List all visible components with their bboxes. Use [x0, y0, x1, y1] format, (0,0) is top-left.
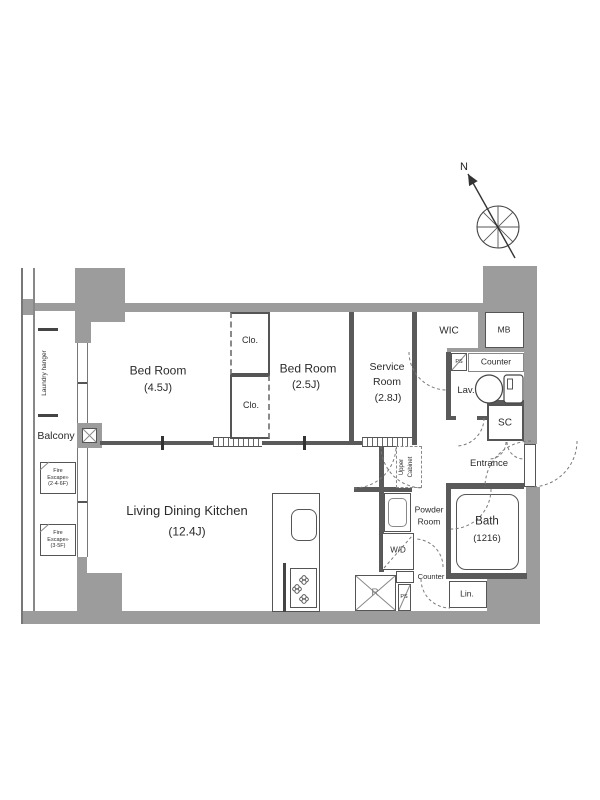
- bedroom-west-size: (4.5J): [144, 382, 172, 394]
- laundry-hanger-label: Laundry hanger: [41, 333, 51, 413]
- kitchen-stub-wall: [283, 563, 286, 612]
- ldk-size: (12.4J): [168, 525, 205, 538]
- linen-label: Lin.: [460, 589, 474, 598]
- fire-escape-text: Escape»: [47, 537, 68, 544]
- laundry-hanger-bar: [38, 328, 58, 331]
- fire-escape-text: Fire: [53, 468, 62, 475]
- wall-bedroom-south-b: [262, 441, 362, 445]
- window-tick: [78, 501, 87, 503]
- closet-upper-label: Clo.: [242, 336, 258, 346]
- pillar-top-right: [483, 266, 537, 310]
- wall-bath-bottom: [446, 573, 527, 579]
- meter-box-label: MB: [498, 325, 511, 334]
- ldk-label: Living Dining Kitchen: [126, 504, 247, 518]
- wall-lav-bottom-a: [446, 416, 456, 420]
- washbasin-bowl: [388, 498, 407, 527]
- pillar-top-left: [75, 268, 125, 322]
- wall-bath-west: [446, 489, 451, 577]
- service-room-label-2: Room: [373, 377, 401, 389]
- entrance-door-leaf: [524, 444, 536, 487]
- powder-room-label-1: Powder: [415, 505, 444, 514]
- svg-text:N: N: [460, 161, 468, 173]
- wall-service-east: [412, 312, 417, 445]
- service-room-size: (2.8J): [375, 393, 402, 405]
- wall-right-upper: [524, 308, 537, 444]
- wall-bedroom2-east: [349, 312, 354, 445]
- pipe-space-top-label: PS: [455, 359, 462, 365]
- wall-top: [75, 303, 537, 312]
- balcony-label: Balcony: [37, 431, 74, 443]
- fire-escape-hatch-upper: Fire Escape» (2·4·6F): [40, 462, 76, 494]
- toilet-icon: [476, 375, 524, 403]
- kitchen-sink: [291, 509, 317, 541]
- closet-lower-label: Clo.: [243, 401, 259, 411]
- fire-escape-text: (3·5F): [51, 543, 66, 550]
- pipe-space-bottom-label: PS: [400, 594, 407, 600]
- lav-label: Lav.: [457, 386, 474, 396]
- balcony-top-bar: [34, 303, 77, 311]
- service-room-label-1: Service: [369, 362, 404, 374]
- bath-size: (1216): [473, 534, 500, 544]
- refrigerator-label: R: [371, 588, 378, 599]
- fire-escape-hatch-lower: Fire Escape» (3·5F): [40, 524, 76, 556]
- door-frame-tick: [303, 436, 306, 450]
- window-tick: [78, 382, 87, 384]
- site-boundary-line: [21, 268, 23, 624]
- fire-escape-text: Fire: [53, 530, 62, 537]
- fire-escape-text: Escape»: [47, 475, 68, 482]
- compass-icon: N: [460, 161, 519, 258]
- door-frame-tick: [161, 436, 164, 450]
- counter-bottom-label: Counter: [418, 573, 445, 581]
- stove-box: [290, 568, 317, 608]
- lav-counter-label: Counter: [481, 357, 511, 366]
- wic-label: WIC: [439, 326, 458, 337]
- laundry-hanger-bar: [38, 414, 58, 417]
- washer-dryer-label: W/D: [390, 547, 406, 556]
- upper-cabinet-label: Upper Cabinet: [398, 440, 420, 494]
- counter-box-bottom: [396, 571, 414, 583]
- powder-room-label-2: Room: [418, 517, 441, 526]
- wall-west-step-b: [87, 573, 122, 611]
- bath-label: Bath: [475, 516, 499, 529]
- wall-bath-top: [446, 483, 524, 489]
- wall-lav-bottom-b: [477, 416, 487, 420]
- floor-plan-canvas: Fire Escape» (2·4·6F) Fire Escape» (3·5F…: [0, 0, 600, 800]
- wall-west-step-a: [77, 557, 87, 611]
- balcony-outer-wall-line: [33, 268, 35, 611]
- wall-bedroom-south-a: [100, 441, 214, 445]
- bedroom-center-label: Bed Room: [280, 362, 337, 375]
- wall-lav-top: [447, 348, 524, 352]
- shoe-closet-label: SC: [498, 418, 512, 429]
- entrance-label: Entrance: [470, 459, 508, 469]
- wall-wic-mb-filler: [478, 310, 485, 352]
- bedroom-center-size: (2.5J): [292, 379, 320, 391]
- wall-bottom: [23, 611, 540, 624]
- pillar-top-left-ext: [75, 318, 91, 343]
- wall-bottom-right-block: [487, 579, 540, 612]
- bedroom-west-label: Bed Room: [130, 364, 187, 377]
- fire-escape-text: (2·4·6F): [48, 481, 68, 488]
- window-catch-symbol: [82, 428, 97, 443]
